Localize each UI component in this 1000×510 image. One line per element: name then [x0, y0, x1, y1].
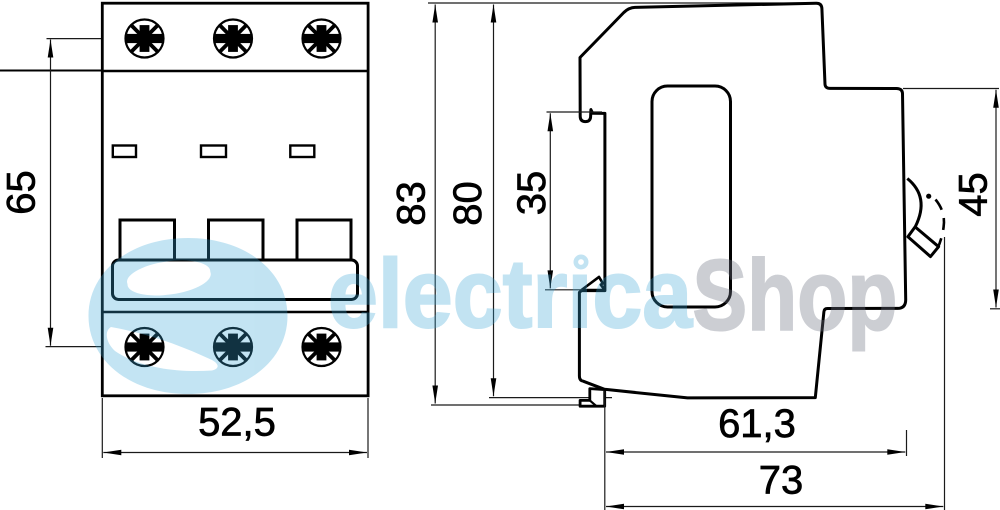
- svg-text:Shop: Shop: [692, 240, 897, 352]
- svg-text:73: 73: [759, 459, 804, 503]
- svg-text:45: 45: [952, 172, 996, 217]
- svg-text:61,3: 61,3: [718, 402, 796, 446]
- svg-text:80: 80: [446, 181, 490, 226]
- svg-text:65: 65: [0, 170, 44, 215]
- svg-text:83: 83: [390, 181, 434, 226]
- svg-text:35: 35: [510, 171, 554, 216]
- svg-text:electrıca: electrıca: [328, 239, 693, 348]
- svg-text:52,5: 52,5: [198, 401, 276, 445]
